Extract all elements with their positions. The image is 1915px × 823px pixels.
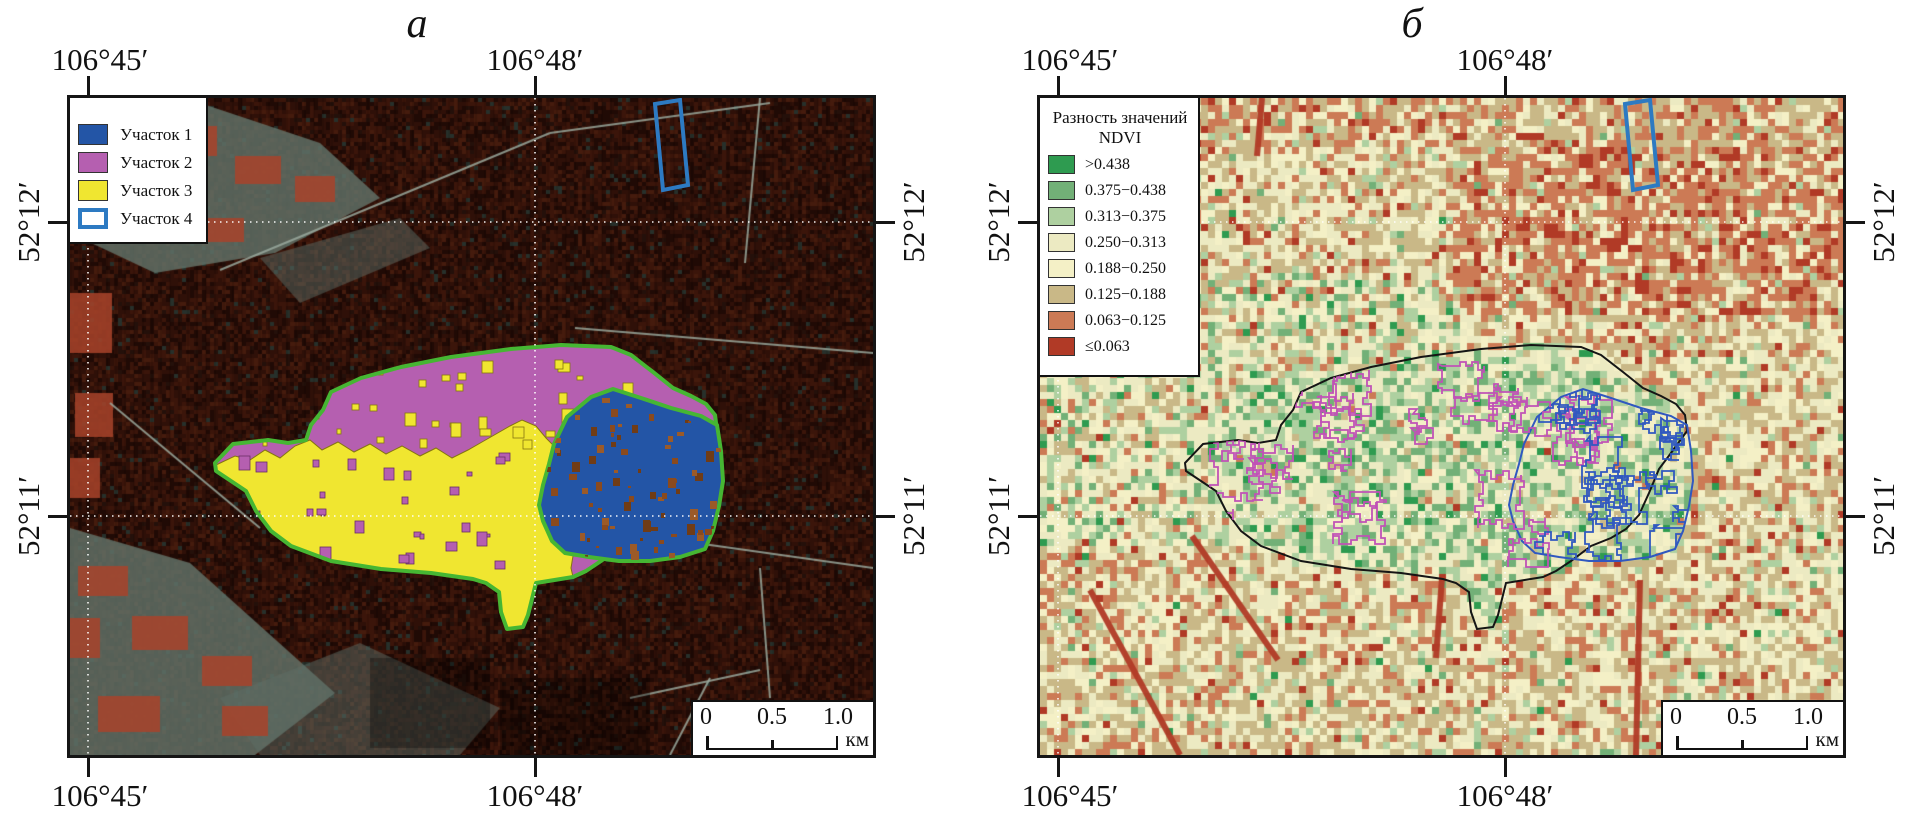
ndvi-class-row: ≤0.063 — [1048, 337, 1198, 356]
axis-tick — [48, 221, 67, 224]
axis-tick — [876, 221, 895, 224]
axis-tick — [87, 76, 90, 95]
ndvi-class-label: 0.125−0.188 — [1085, 287, 1166, 303]
scalebar-tick — [1741, 740, 1744, 748]
ndvi-class-row: 0.375−0.438 — [1048, 181, 1198, 200]
panel-b-lon-bottom-right: 106°48′ — [1457, 778, 1554, 814]
site-4-outline — [655, 100, 688, 190]
axis-tick — [48, 515, 67, 518]
axis-tick — [1018, 221, 1037, 224]
axis-tick — [1018, 515, 1037, 518]
figure: а Участок 1 Участок 2 Участок 3 Участок … — [0, 0, 1915, 823]
panel-a-title: а — [407, 0, 428, 48]
ndvi-class-row: >0.438 — [1048, 155, 1198, 174]
change-clusters-left — [1187, 362, 1612, 567]
ndvi-class-swatch — [1048, 311, 1075, 330]
ndvi-class-row: 0.313−0.375 — [1048, 207, 1198, 226]
panel-a-lon-bottom-left: 106°45′ — [52, 778, 149, 814]
axis-tick — [876, 515, 895, 518]
panel-b-lon-bottom-left: 106°45′ — [1022, 778, 1119, 814]
axis-tick — [534, 76, 537, 95]
ndvi-class-swatch — [1048, 337, 1075, 356]
scalebar-05: 0.5 — [757, 704, 787, 731]
ndvi-class-row: 0.188−0.250 — [1048, 259, 1198, 278]
ndvi-class-row: 0.063−0.125 — [1048, 311, 1198, 330]
panel-a-lat-left-lower: 52°11′ — [11, 476, 47, 556]
site-4-swatch — [78, 208, 108, 229]
panel-a-lon-top-right: 106°48′ — [487, 42, 584, 78]
axis-tick — [1846, 515, 1865, 518]
ndvi-class-swatch — [1048, 233, 1075, 252]
panel-b-lon-top-left: 106°45′ — [1022, 42, 1119, 78]
site-1-swatch — [78, 124, 108, 145]
panel-a-lat-left-upper: 52°12′ — [11, 181, 47, 262]
scalebar-tick — [706, 736, 709, 748]
ndvi-class-swatch — [1048, 207, 1075, 226]
ndvi-class-swatch — [1048, 259, 1075, 278]
panel-a-scalebar: 0 0.5 1.0 км — [691, 700, 873, 755]
site-4-label: Участок 4 — [120, 210, 192, 227]
ndvi-class-label: ≤0.063 — [1085, 339, 1130, 355]
site-3-label: Участок 3 — [120, 182, 192, 199]
panel-b-lat-right-lower: 52°11′ — [1866, 476, 1902, 556]
ndvi-class-swatch — [1048, 181, 1075, 200]
ndvi-class-swatch — [1048, 285, 1075, 304]
panel-b-legend: Разность значений NDVI >0.438 0.375−0.43… — [1040, 98, 1200, 377]
axis-tick — [87, 758, 90, 777]
scalebar-tick — [771, 740, 774, 748]
axis-tick — [1504, 758, 1507, 777]
legend-item-site-3: Участок 3 — [78, 180, 202, 201]
scalebar-05: 0.5 — [1727, 704, 1757, 731]
panel-a-lat-right-upper: 52°12′ — [896, 181, 932, 262]
ndvi-class-label: >0.438 — [1085, 157, 1130, 173]
site-2-label: Участок 2 — [120, 154, 192, 171]
panel-a-map: Участок 1 Участок 2 Участок 3 Участок 4 … — [67, 95, 876, 758]
panel-a-lon-top-left: 106°45′ — [52, 42, 149, 78]
panel-b-lat-right-upper: 52°12′ — [1866, 181, 1902, 262]
ndvi-legend-title-line2: NDVI — [1048, 128, 1192, 148]
scalebar-0: 0 — [700, 704, 712, 731]
panel-a-legend: Участок 1 Участок 2 Участок 3 Участок 4 — [70, 98, 208, 244]
scalebar-tick — [1676, 736, 1679, 748]
panel-b-title: б — [1401, 0, 1422, 48]
panel-a-lon-bottom-right: 106°48′ — [487, 778, 584, 814]
axis-tick — [1057, 758, 1060, 777]
scalebar-unit: км — [846, 727, 870, 752]
ndvi-class-label: 0.250−0.313 — [1085, 235, 1166, 251]
legend-item-site-4: Участок 4 — [78, 208, 202, 229]
site-1-label: Участок 1 — [120, 126, 192, 143]
ndvi-class-label: 0.375−0.438 — [1085, 183, 1166, 199]
scalebar-line — [1676, 735, 1808, 750]
panel-b-map: Разность значений NDVI >0.438 0.375−0.43… — [1037, 95, 1846, 758]
ndvi-class-row: 0.125−0.188 — [1048, 285, 1198, 304]
scalebar-line — [706, 735, 838, 750]
ndvi-legend-title-line1: Разность значений — [1048, 108, 1192, 128]
panel-a-lat-right-lower: 52°11′ — [896, 476, 932, 556]
axis-tick — [1057, 76, 1060, 95]
ndvi-class-row: 0.250−0.313 — [1048, 233, 1198, 252]
scalebar-unit: км — [1816, 727, 1840, 752]
axis-tick — [1504, 76, 1507, 95]
panel-b-scalebar: 0 0.5 1.0 км — [1661, 700, 1843, 755]
site-2-swatch — [78, 152, 108, 173]
ndvi-legend-title: Разность значений NDVI — [1048, 108, 1192, 147]
ndvi-class-swatch — [1048, 155, 1075, 174]
ndvi-class-label: 0.188−0.250 — [1085, 261, 1166, 277]
site-4-outline — [1625, 100, 1658, 190]
panel-b-lat-left-lower: 52°11′ — [981, 476, 1017, 556]
scalebar-0: 0 — [1670, 704, 1682, 731]
ndvi-class-label: 0.063−0.125 — [1085, 313, 1166, 329]
scalebar-tick — [1806, 736, 1809, 748]
scalebar-tick — [836, 736, 839, 748]
axis-tick — [1846, 221, 1865, 224]
legend-item-site-1: Участок 1 — [78, 124, 202, 145]
ndvi-class-label: 0.313−0.375 — [1085, 209, 1166, 225]
panel-b-lat-left-upper: 52°12′ — [981, 181, 1017, 262]
panel-b-lon-top-right: 106°48′ — [1457, 42, 1554, 78]
legend-item-site-2: Участок 2 — [78, 152, 202, 173]
axis-tick — [534, 758, 537, 777]
site-3-swatch — [78, 180, 108, 201]
